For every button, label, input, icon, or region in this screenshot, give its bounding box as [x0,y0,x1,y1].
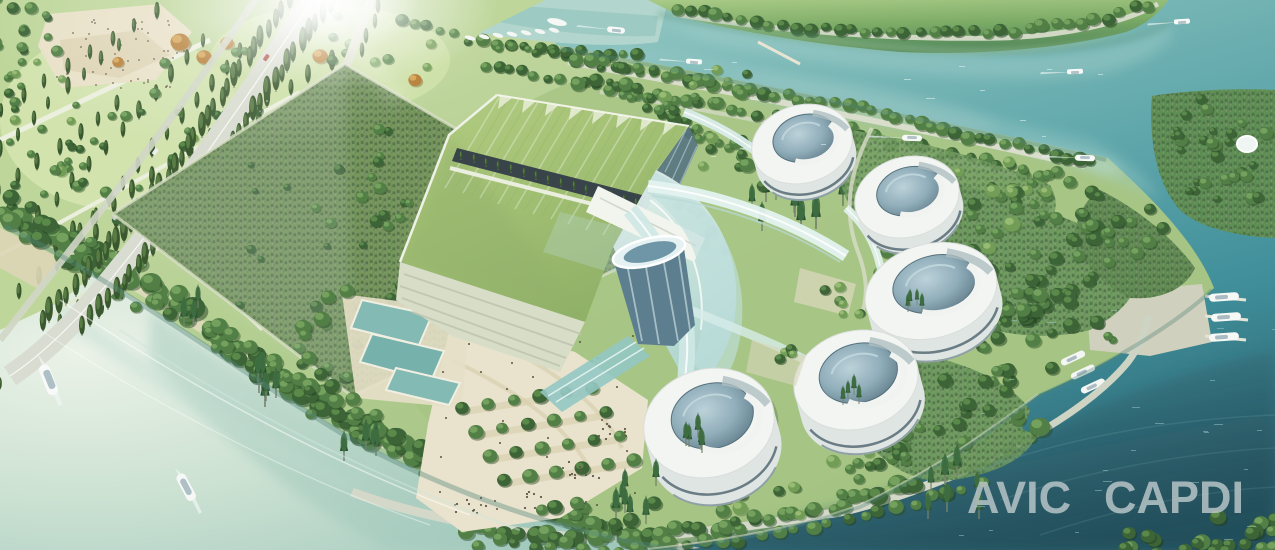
svg-text:CAPDI: CAPDI [1104,472,1244,523]
svg-text:AVIC: AVIC [967,472,1071,523]
